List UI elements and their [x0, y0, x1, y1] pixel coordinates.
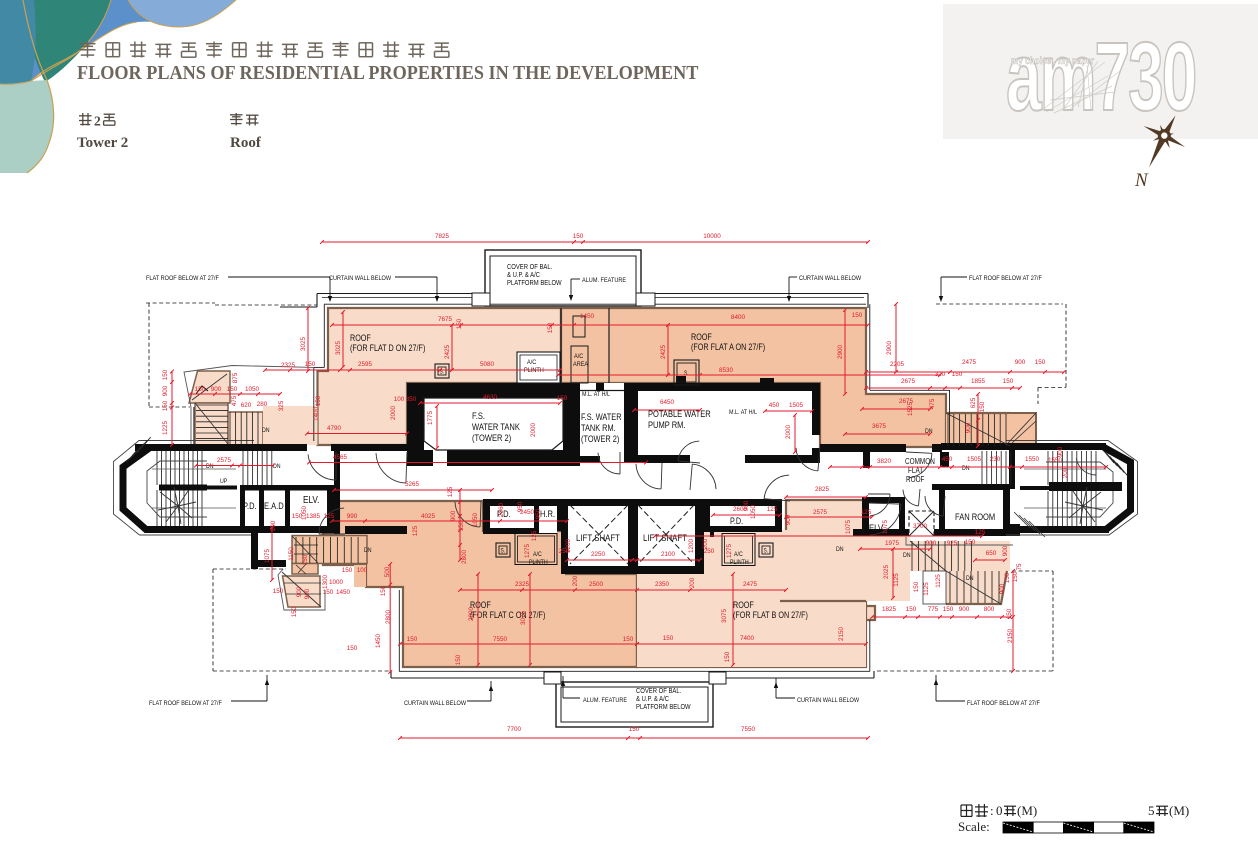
- svg-text:ALUM. FEATURE: ALUM. FEATURE: [583, 697, 627, 705]
- svg-text:150: 150: [1012, 571, 1019, 582]
- svg-text:P.D.: P.D.: [243, 500, 257, 511]
- svg-text:PLINTH: PLINTH: [529, 560, 548, 567]
- svg-text:625: 625: [970, 397, 977, 408]
- svg-text:230: 230: [990, 456, 1001, 463]
- svg-text:A/C: A/C: [734, 552, 743, 559]
- svg-text:1400: 1400: [313, 407, 320, 422]
- svg-text:1050: 1050: [472, 513, 479, 528]
- svg-text:150: 150: [455, 654, 462, 665]
- svg-text:150: 150: [323, 589, 334, 596]
- svg-text:2595: 2595: [358, 361, 373, 368]
- svg-text:F.S.: F.S.: [472, 410, 485, 421]
- svg-text:200: 200: [702, 538, 709, 549]
- svg-text:am730: am730: [1006, 24, 1195, 131]
- svg-text:1200: 1200: [688, 539, 695, 554]
- svg-text:900: 900: [999, 583, 1006, 594]
- svg-text:3025: 3025: [300, 337, 307, 352]
- svg-text:7400: 7400: [740, 635, 755, 642]
- svg-text:5080: 5080: [480, 361, 495, 368]
- svg-text:150: 150: [979, 401, 986, 412]
- svg-text:2325: 2325: [515, 581, 530, 588]
- svg-text:150: 150: [1003, 378, 1014, 385]
- svg-text:PLATFORM BELOW: PLATFORM BELOW: [636, 704, 691, 712]
- svg-text:2150: 2150: [838, 627, 845, 642]
- svg-text:N: N: [1134, 170, 1149, 191]
- svg-text:2800: 2800: [385, 610, 392, 625]
- svg-text:1125: 1125: [935, 574, 942, 588]
- svg-text:2000: 2000: [785, 425, 792, 440]
- svg-text:CURTAIN WALL BELOW: CURTAIN WALL BELOW: [797, 697, 859, 705]
- svg-text:4565: 4565: [333, 454, 348, 461]
- svg-text:150: 150: [965, 539, 976, 546]
- svg-text:DN: DN: [262, 428, 270, 435]
- svg-text:900: 900: [211, 386, 222, 393]
- svg-text:1050: 1050: [750, 505, 757, 520]
- svg-text:2100: 2100: [661, 551, 676, 558]
- svg-text:S.: S.: [684, 371, 689, 378]
- svg-text:E.A.D: E.A.D: [264, 500, 284, 511]
- svg-text:1385: 1385: [306, 513, 321, 520]
- svg-text:900: 900: [1002, 545, 1009, 556]
- svg-text:8400: 8400: [731, 314, 746, 321]
- svg-text:(FOR FLAT C ON 27/F): (FOR FLAT C ON 27/F): [470, 610, 546, 620]
- svg-text:900: 900: [959, 606, 970, 613]
- svg-text:150: 150: [162, 369, 169, 380]
- svg-text:150: 150: [227, 386, 238, 393]
- svg-text:PLATFORM BELOW: PLATFORM BELOW: [507, 280, 562, 288]
- svg-text:7700: 7700: [507, 726, 522, 733]
- svg-text:ROOF: ROOF: [691, 332, 712, 342]
- svg-text:1450: 1450: [375, 634, 382, 649]
- svg-text:1450: 1450: [336, 589, 351, 596]
- svg-text:2575: 2575: [217, 457, 232, 464]
- svg-text:775: 775: [928, 606, 939, 613]
- svg-text:200: 200: [689, 577, 696, 588]
- svg-text:1300: 1300: [322, 575, 329, 590]
- svg-text:M.L. AT H/L: M.L. AT H/L: [729, 410, 758, 417]
- svg-text:100: 100: [394, 396, 405, 403]
- svg-text:150: 150: [305, 361, 316, 368]
- svg-text:DN: DN: [206, 464, 214, 471]
- svg-text:1000: 1000: [329, 579, 344, 586]
- svg-text:2800: 2800: [461, 550, 468, 565]
- svg-text:2000: 2000: [530, 423, 537, 438]
- svg-text:150: 150: [573, 233, 584, 240]
- svg-text:3820: 3820: [877, 458, 892, 465]
- svg-text:150: 150: [380, 585, 387, 596]
- svg-text:ELV.: ELV.: [303, 494, 319, 505]
- svg-text:ROOF: ROOF: [350, 333, 371, 343]
- svg-text:4025: 4025: [421, 513, 436, 520]
- svg-text:1550: 1550: [1048, 457, 1063, 464]
- svg-text:150: 150: [852, 312, 863, 319]
- svg-text:(FOR FLAT B ON 27/F): (FOR FLAT B ON 27/F): [733, 610, 808, 620]
- svg-text:WATER TANK: WATER TANK: [472, 421, 520, 432]
- svg-text:150: 150: [407, 636, 418, 643]
- svg-text:150: 150: [302, 554, 309, 565]
- svg-text:3675: 3675: [872, 423, 887, 430]
- svg-text:150: 150: [952, 371, 963, 378]
- svg-text:800: 800: [984, 606, 995, 613]
- svg-text:150: 150: [315, 395, 322, 406]
- svg-text:1075: 1075: [264, 549, 271, 564]
- svg-text:1275: 1275: [726, 544, 733, 559]
- svg-text:PLINTH: PLINTH: [730, 560, 749, 567]
- svg-text:7675: 7675: [438, 316, 453, 323]
- svg-text:925: 925: [947, 540, 958, 547]
- svg-text:COVER OF BAL.: COVER OF BAL.: [636, 688, 681, 696]
- svg-text:1825: 1825: [882, 606, 897, 613]
- svg-text:2900: 2900: [837, 345, 844, 360]
- svg-text:A/C: A/C: [574, 353, 584, 361]
- svg-text:my choice , my paper: my choice , my paper: [1011, 54, 1095, 66]
- svg-text:2325: 2325: [281, 362, 296, 369]
- svg-text:325: 325: [278, 400, 285, 411]
- svg-text:(M): (M): [1169, 803, 1189, 818]
- svg-text:CURTAIN WALL BELOW: CURTAIN WALL BELOW: [404, 700, 466, 708]
- svg-text:ALUM. FEATURE: ALUM. FEATURE: [582, 277, 626, 285]
- svg-text:3700: 3700: [913, 523, 928, 530]
- svg-text:475: 475: [929, 398, 936, 409]
- svg-text:150: 150: [906, 606, 917, 613]
- svg-text:AREA: AREA: [573, 361, 589, 369]
- svg-text:FLAT: FLAT: [908, 466, 924, 475]
- svg-text:M.L. AT H/L: M.L. AT H/L: [582, 392, 611, 399]
- svg-text:1975: 1975: [885, 540, 900, 547]
- svg-text:COVER OF BAL.: COVER OF BAL.: [507, 264, 552, 272]
- svg-text:FLAT ROOF BELOW AT 27/F: FLAT ROOF BELOW AT 27/F: [146, 275, 219, 283]
- svg-text:2425: 2425: [444, 345, 451, 360]
- svg-text:125: 125: [767, 506, 778, 513]
- svg-text:1525: 1525: [907, 402, 914, 417]
- svg-text:FAN ROOM: FAN ROOM: [955, 511, 995, 522]
- svg-text:150: 150: [458, 520, 465, 531]
- svg-text:2900: 2900: [886, 341, 893, 356]
- svg-text:150: 150: [291, 606, 298, 617]
- svg-text:900: 900: [162, 385, 169, 396]
- svg-text:2800: 2800: [468, 607, 475, 622]
- svg-text:Roof: Roof: [230, 135, 262, 151]
- svg-text:150: 150: [162, 400, 169, 411]
- svg-text:DN: DN: [903, 553, 911, 560]
- svg-text:125: 125: [531, 530, 538, 541]
- svg-text:1275: 1275: [524, 544, 531, 559]
- svg-text:FLAT ROOF BELOW AT 27/F: FLAT ROOF BELOW AT 27/F: [149, 700, 222, 708]
- svg-text:(TOWER 2): (TOWER 2): [472, 432, 511, 443]
- svg-text:2475: 2475: [743, 581, 758, 588]
- svg-text:2205: 2205: [890, 361, 905, 368]
- svg-text:900: 900: [965, 422, 972, 433]
- svg-text:1505: 1505: [967, 456, 982, 463]
- svg-text:S.: S.: [764, 548, 769, 555]
- svg-text:1050: 1050: [245, 386, 260, 393]
- svg-text:A/C: A/C: [527, 359, 537, 367]
- svg-text:2675: 2675: [901, 378, 916, 385]
- svg-text:FLAT ROOF BELOW AT 27/F: FLAT ROOF BELOW AT 27/F: [967, 700, 1040, 708]
- svg-text:(FOR FLAT A ON 27/F): (FOR FLAT A ON 27/F): [691, 342, 765, 352]
- svg-text:1855: 1855: [971, 378, 986, 385]
- svg-text:1050: 1050: [301, 506, 308, 521]
- svg-text:P.D.: P.D.: [730, 516, 743, 526]
- svg-text:150: 150: [663, 635, 674, 642]
- svg-text:10000: 10000: [703, 233, 721, 240]
- svg-text:620: 620: [241, 402, 252, 409]
- svg-text:3075: 3075: [721, 609, 728, 624]
- svg-text:7550: 7550: [741, 726, 756, 733]
- svg-text:(M): (M): [1017, 803, 1037, 818]
- svg-text:F.S. WATER: F.S. WATER: [581, 412, 622, 422]
- svg-text:875: 875: [232, 372, 239, 383]
- svg-text:2060: 2060: [498, 503, 505, 518]
- svg-text:DN: DN: [364, 548, 372, 555]
- svg-text:FLOOR PLANS OF RESIDENTIAL PRO: FLOOR PLANS OF RESIDENTIAL PROPERTIES IN…: [77, 62, 699, 84]
- svg-text:150: 150: [456, 318, 463, 329]
- svg-text:PUMP RM.: PUMP RM.: [648, 419, 686, 430]
- svg-text:CURTAIN WALL BELOW: CURTAIN WALL BELOW: [799, 275, 861, 283]
- svg-text:990: 990: [347, 513, 358, 520]
- svg-text:0: 0: [996, 803, 1003, 818]
- svg-text:FLAT ROOF BELOW AT 27/F: FLAT ROOF BELOW AT 27/F: [969, 275, 1042, 283]
- svg-text:150: 150: [195, 386, 206, 393]
- svg-text:8530: 8530: [719, 367, 734, 374]
- svg-text:7825: 7825: [435, 233, 450, 240]
- svg-text:Scale:: Scale:: [958, 819, 990, 834]
- svg-text:1505: 1505: [789, 402, 804, 409]
- svg-text:2: 2: [94, 114, 101, 129]
- svg-text:2250: 2250: [591, 551, 606, 558]
- svg-text:200: 200: [1062, 467, 1069, 478]
- svg-text:5265: 5265: [405, 481, 420, 488]
- svg-text:1075: 1075: [882, 520, 889, 535]
- svg-text:150: 150: [273, 588, 284, 595]
- svg-text:900: 900: [1057, 446, 1064, 457]
- svg-text:475: 475: [231, 395, 238, 406]
- svg-text:2425: 2425: [660, 345, 667, 360]
- svg-text:900: 900: [296, 586, 303, 597]
- svg-text:1150: 1150: [288, 547, 295, 561]
- svg-text:150: 150: [1035, 359, 1046, 366]
- svg-text:900: 900: [785, 514, 792, 525]
- svg-text:2825: 2825: [815, 486, 830, 493]
- svg-text:2575: 2575: [813, 509, 828, 516]
- svg-text:& U.P. & A/C: & U.P. & A/C: [636, 696, 669, 704]
- svg-text:200: 200: [270, 520, 277, 531]
- svg-text:TANK RM.: TANK RM.: [581, 423, 616, 433]
- svg-text:900: 900: [304, 588, 311, 599]
- svg-text:(TOWER 2): (TOWER 2): [581, 434, 620, 444]
- svg-text:900: 900: [743, 500, 750, 511]
- svg-text:4630: 4630: [483, 394, 498, 401]
- svg-text:Tower 2: Tower 2: [77, 135, 128, 151]
- svg-text:950: 950: [535, 508, 542, 519]
- svg-text:650: 650: [986, 550, 997, 557]
- svg-text:450: 450: [769, 402, 780, 409]
- svg-text:1550: 1550: [1025, 456, 1040, 463]
- svg-text:A/C: A/C: [533, 552, 542, 559]
- svg-text:150: 150: [943, 606, 954, 613]
- svg-text:450: 450: [942, 456, 953, 463]
- svg-text:200: 200: [572, 575, 579, 586]
- svg-text:2350: 2350: [655, 581, 670, 588]
- svg-text:125: 125: [447, 486, 454, 497]
- svg-text:DN: DN: [836, 547, 844, 554]
- svg-text:250: 250: [559, 548, 570, 555]
- svg-text:2450: 2450: [520, 509, 535, 516]
- svg-text:2475: 2475: [962, 359, 977, 366]
- svg-text:7550: 7550: [493, 636, 508, 643]
- svg-text:150: 150: [347, 645, 358, 652]
- svg-text:150: 150: [557, 395, 568, 402]
- svg-text:6450: 6450: [660, 399, 675, 406]
- svg-text::: :: [990, 803, 994, 818]
- svg-text:280: 280: [257, 401, 268, 408]
- svg-text:150: 150: [623, 636, 634, 643]
- svg-text:UP: UP: [220, 479, 227, 486]
- svg-text:ROOF: ROOF: [906, 475, 925, 484]
- svg-text:ROOF: ROOF: [733, 600, 754, 610]
- svg-text:150: 150: [342, 567, 353, 574]
- svg-text:1125: 1125: [893, 573, 900, 587]
- svg-text:H.R.: H.R.: [540, 508, 555, 519]
- svg-text:320: 320: [935, 371, 946, 378]
- svg-text:150: 150: [1004, 572, 1011, 583]
- svg-text:S.: S.: [501, 548, 506, 555]
- svg-text:4790: 4790: [327, 425, 342, 432]
- svg-text:150: 150: [913, 581, 920, 592]
- svg-text:DN: DN: [966, 576, 974, 583]
- svg-text:3075: 3075: [520, 611, 527, 626]
- svg-text:CURTAIN WALL BELOW: CURTAIN WALL BELOW: [329, 275, 391, 283]
- svg-text:1775: 1775: [427, 411, 434, 426]
- svg-text:125: 125: [861, 509, 872, 516]
- svg-text:& U.P. & A/C: & U.P. & A/C: [507, 272, 540, 280]
- svg-text:350: 350: [406, 396, 417, 403]
- svg-text:125: 125: [975, 529, 986, 536]
- svg-text:100: 100: [357, 567, 368, 574]
- svg-text:3025: 3025: [335, 341, 342, 356]
- svg-text:150: 150: [629, 726, 640, 733]
- svg-text:(FOR FLAT D ON 27/F): (FOR FLAT D ON 27/F): [350, 343, 426, 353]
- svg-text:900: 900: [1015, 359, 1026, 366]
- svg-text:900: 900: [450, 510, 457, 521]
- svg-text:125: 125: [412, 525, 419, 536]
- svg-text:1125: 1125: [923, 582, 930, 596]
- svg-text:2000: 2000: [390, 406, 397, 421]
- svg-text:2025: 2025: [883, 565, 890, 580]
- svg-text:1450: 1450: [580, 313, 595, 320]
- svg-text:150: 150: [547, 322, 554, 333]
- svg-text:150: 150: [724, 651, 731, 662]
- svg-text:125: 125: [324, 513, 335, 520]
- svg-text:1225: 1225: [162, 421, 169, 436]
- svg-text:2500: 2500: [589, 581, 604, 588]
- svg-text:5: 5: [1148, 803, 1155, 818]
- svg-text:75: 75: [1016, 563, 1023, 571]
- svg-text:900: 900: [926, 540, 937, 547]
- svg-text:1075: 1075: [845, 520, 852, 535]
